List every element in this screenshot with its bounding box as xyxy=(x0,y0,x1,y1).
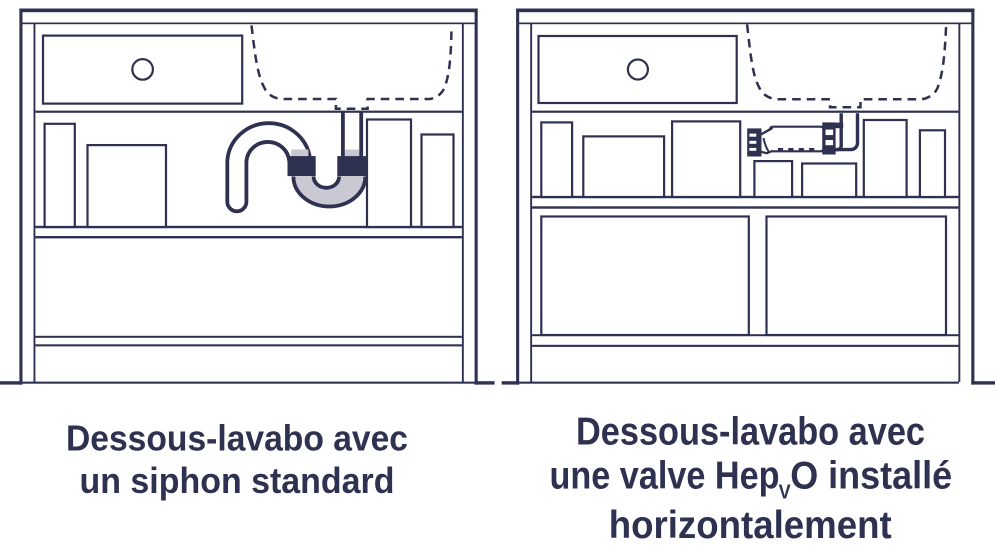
svg-text:Dessous-lavabo avec: Dessous-lavabo avec xyxy=(576,411,925,454)
svg-text:un siphon standard: un siphon standard xyxy=(80,460,395,501)
svg-text:horizontalement: horizontalement xyxy=(609,504,892,545)
svg-text:une valve Hep: une valve Hep xyxy=(550,455,780,498)
svg-text:Dessous-lavabo avec: Dessous-lavabo avec xyxy=(66,418,408,459)
svg-text:O installé: O installé xyxy=(790,455,952,498)
